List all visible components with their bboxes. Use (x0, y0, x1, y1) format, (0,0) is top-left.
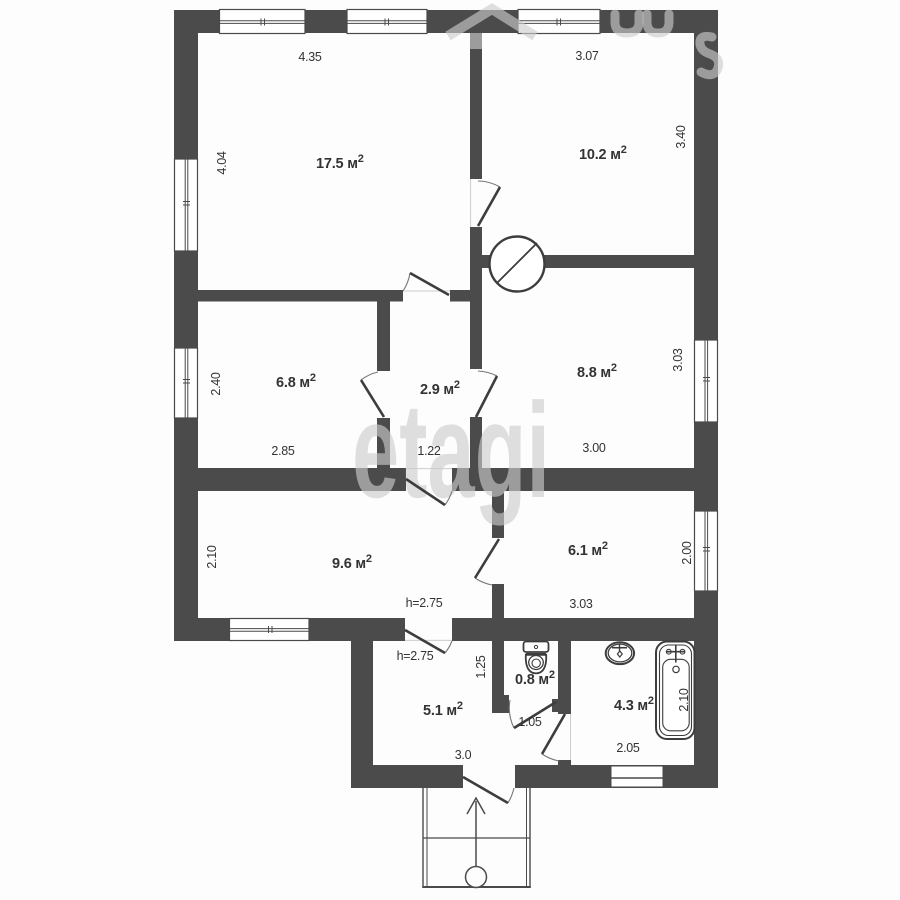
svg-text:2.10: 2.10 (677, 688, 691, 711)
svg-text:h=2.75: h=2.75 (406, 596, 443, 610)
svg-text:h=2.75: h=2.75 (397, 649, 434, 663)
svg-text:4.04: 4.04 (215, 151, 229, 174)
svg-text:2.00: 2.00 (680, 541, 694, 564)
svg-text:3.0: 3.0 (455, 748, 472, 762)
svg-text:2.10: 2.10 (205, 545, 219, 568)
svg-text:3.40: 3.40 (674, 125, 688, 148)
svg-text:3.07: 3.07 (575, 49, 598, 63)
svg-text:3.00: 3.00 (582, 441, 605, 455)
svg-text:2.85: 2.85 (271, 444, 294, 458)
svg-text:1.22: 1.22 (417, 444, 440, 458)
svg-text:1.25: 1.25 (474, 655, 488, 678)
svg-text:3.03: 3.03 (671, 348, 685, 371)
svg-text:4.35: 4.35 (298, 50, 321, 64)
svg-text:10.2 м2: 10.2 м2 (579, 144, 627, 163)
svg-text:2.05: 2.05 (616, 741, 639, 755)
svg-text:17.5 м2: 17.5 м2 (316, 153, 364, 172)
svg-text:3.03: 3.03 (569, 597, 592, 611)
svg-text:1.05: 1.05 (518, 715, 541, 729)
svg-text:2.40: 2.40 (209, 372, 223, 395)
